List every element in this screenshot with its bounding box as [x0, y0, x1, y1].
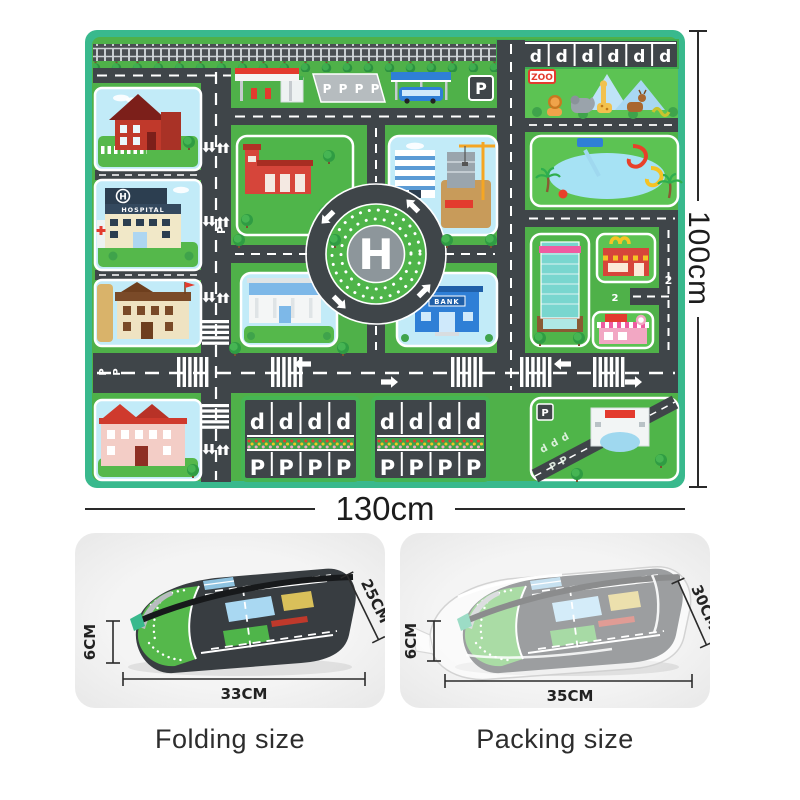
stall-letter: d	[530, 47, 542, 67]
dimension-line	[697, 32, 699, 201]
folding-size-caption: Folding size	[75, 724, 385, 755]
umbrella	[559, 190, 568, 199]
glass-tower	[537, 242, 583, 332]
hospital-block: H HOSPITAL	[95, 180, 201, 270]
packing-size-card: 6CM 30CM 35CM	[400, 533, 710, 708]
stall-letter: P	[336, 456, 351, 480]
stall-letter: d	[250, 410, 265, 434]
roundabout-helipad: H	[306, 184, 446, 324]
lion	[547, 95, 562, 116]
parking-lot: d d d d P P P P	[373, 398, 488, 480]
school-block	[95, 400, 201, 480]
stall-letter: d	[556, 47, 568, 67]
fastfood-block	[597, 234, 655, 282]
play-mat: d d d d d d d	[85, 30, 685, 488]
plastic-bag	[412, 567, 691, 680]
dimension-line	[455, 508, 685, 510]
packing-size-caption: Packing size	[400, 724, 710, 755]
pavement-letter: P	[323, 82, 332, 96]
route-number: 2	[665, 274, 673, 287]
airport-parking-sign: P	[541, 408, 548, 419]
width-dimension: 130cm	[85, 486, 685, 532]
parking-sign-letter: P	[475, 79, 487, 98]
railroad	[93, 44, 497, 61]
helipad-letter: H	[358, 230, 393, 279]
airport-block: d d d P P P	[531, 398, 678, 482]
stall-letter: d	[437, 410, 452, 434]
stall-letter: d	[307, 410, 322, 434]
route-number: 2	[612, 293, 619, 304]
amusement-park	[531, 136, 682, 206]
house-block	[95, 88, 201, 170]
stall-letter: P	[380, 456, 395, 480]
stall-letter: d	[466, 410, 481, 434]
thickness-label: 6CM	[81, 624, 99, 660]
stall-letter: d	[380, 410, 395, 434]
product-image: d d d d d d d	[0, 0, 800, 800]
stall-letter: d	[659, 47, 671, 67]
hospital-helipad-letter: H	[119, 193, 127, 203]
road-parking-letter: P	[215, 226, 228, 234]
stall-letter: P	[466, 456, 481, 480]
stall-letter: P	[250, 456, 265, 480]
folded-mat-photo: 6CM 25CM 33CM	[75, 533, 385, 708]
parking-pavement: P P P P	[313, 74, 385, 102]
stall-letter: d	[279, 410, 294, 434]
stall-letter: P	[307, 456, 322, 480]
pavement-letter: P	[371, 82, 380, 96]
thickness-line	[106, 621, 120, 663]
road-parking-letter: P	[98, 368, 109, 375]
stall-letter: P	[408, 456, 423, 480]
road-parking-letter: P	[112, 368, 123, 375]
height-label: 100cm	[681, 211, 715, 306]
stall-letter: P	[278, 456, 293, 480]
terminal-building	[591, 408, 649, 452]
mansion-block	[95, 280, 201, 346]
play-mat-art: d d d d d d d	[85, 30, 685, 488]
parking-sign: P	[469, 76, 493, 100]
folding-size-card: 6CM 25CM 33CM	[75, 533, 385, 708]
dimension-line	[697, 317, 699, 486]
donut-sign-icon	[637, 316, 645, 324]
dimension-tick	[689, 486, 707, 488]
police-building	[247, 278, 323, 323]
bank-sign: BANK	[434, 298, 459, 306]
pavement-letter: P	[339, 82, 348, 96]
stall-letter: d	[336, 410, 351, 434]
parking-lot: d d d d P P P P	[243, 398, 358, 480]
width-label: 33CM	[221, 685, 268, 703]
depth-label: 25CM	[357, 576, 385, 626]
height-dimension: 100cm	[678, 30, 718, 488]
pavement-letter: P	[355, 82, 364, 96]
thickness-label: 6CM	[402, 623, 420, 659]
cafe-block	[593, 312, 653, 348]
stall-letter: d	[607, 47, 619, 67]
stall-letter: P	[437, 456, 452, 480]
zoo-sign: ZOO	[531, 73, 553, 83]
stall-letter: d	[582, 47, 594, 67]
stall-letter: d	[633, 47, 645, 67]
tower-block	[531, 234, 589, 346]
width-label: 35CM	[547, 687, 594, 705]
dimension-line	[85, 508, 315, 510]
width-label: 130cm	[335, 490, 434, 528]
packed-mat-photo: 6CM 30CM 35CM	[400, 533, 710, 708]
stall-letter: d	[409, 410, 424, 434]
hospital-sign: HOSPITAL	[121, 206, 164, 214]
